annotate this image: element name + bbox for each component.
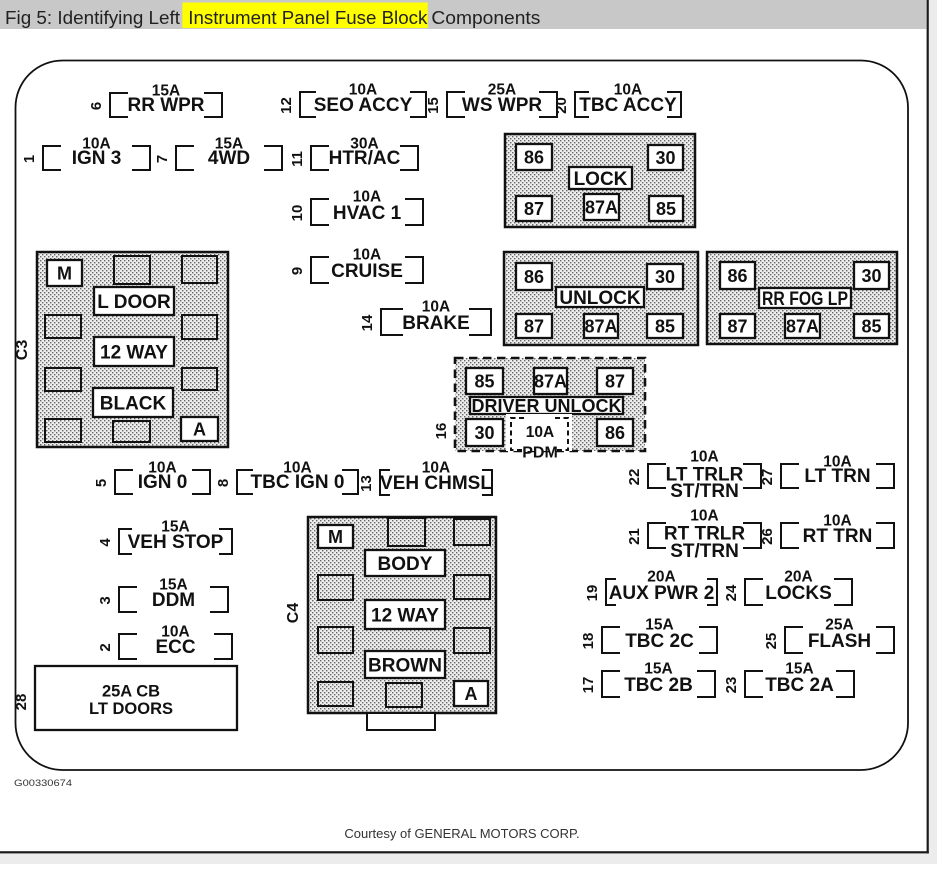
svg-text:TBC 2B: TBC 2B xyxy=(624,675,693,696)
svg-text:VEH STOP: VEH STOP xyxy=(128,532,224,553)
svg-text:87A: 87A xyxy=(786,316,819,336)
svg-text:BODY: BODY xyxy=(378,554,433,575)
svg-text:12 WAY: 12 WAY xyxy=(371,605,439,626)
svg-text:21: 21 xyxy=(626,528,643,545)
svg-text:DDM: DDM xyxy=(152,590,195,611)
svg-text:Courtesy of GENERAL MOTORS COR: Courtesy of GENERAL MOTORS CORP. xyxy=(344,826,579,841)
svg-text:L DOOR: L DOOR xyxy=(97,292,171,313)
svg-text:4: 4 xyxy=(97,538,114,547)
svg-text:PDM: PDM xyxy=(522,445,558,462)
svg-text:30: 30 xyxy=(655,267,675,287)
svg-text:LOCK: LOCK xyxy=(574,169,628,190)
svg-text:DRIVER UNLOCK: DRIVER UNLOCK xyxy=(471,396,621,416)
svg-text:RT TRN: RT TRN xyxy=(803,526,873,547)
svg-text:10A: 10A xyxy=(690,449,718,466)
svg-text:86: 86 xyxy=(727,266,747,286)
svg-text:19: 19 xyxy=(584,585,601,602)
svg-text:7: 7 xyxy=(154,155,171,163)
svg-text:IGN 0: IGN 0 xyxy=(138,472,188,493)
svg-text:14: 14 xyxy=(359,314,376,331)
svg-text:87: 87 xyxy=(524,316,544,336)
svg-text:TBC IGN 0: TBC IGN 0 xyxy=(251,472,345,493)
svg-text:12: 12 xyxy=(278,97,295,114)
svg-text:24: 24 xyxy=(723,584,740,601)
svg-text:RR WPR: RR WPR xyxy=(127,95,204,116)
svg-text:IGN 3: IGN 3 xyxy=(72,148,122,169)
svg-text:CRUISE: CRUISE xyxy=(331,261,403,282)
svg-text:LOCKS: LOCKS xyxy=(765,583,832,604)
svg-text:86: 86 xyxy=(605,423,625,443)
svg-text:10A: 10A xyxy=(526,424,554,441)
svg-text:ST/TRN: ST/TRN xyxy=(670,481,739,502)
svg-text:VEH CHMSL: VEH CHMSL xyxy=(380,473,492,494)
svg-text:10: 10 xyxy=(289,205,306,222)
svg-text:ECC: ECC xyxy=(155,637,195,658)
svg-text:8: 8 xyxy=(215,479,232,487)
svg-text:M: M xyxy=(328,527,343,547)
svg-text:87: 87 xyxy=(524,199,544,219)
svg-text:UNLOCK: UNLOCK xyxy=(559,288,641,309)
svg-text:BRAKE: BRAKE xyxy=(402,313,470,334)
svg-text:G00330674: G00330674 xyxy=(14,778,72,789)
svg-text:27: 27 xyxy=(759,469,776,486)
svg-text:Fig 5: Identifying LeftInstrum: Fig 5: Identifying LeftInstrument Panel … xyxy=(5,7,540,28)
svg-text:13: 13 xyxy=(358,475,375,492)
svg-text:C3: C3 xyxy=(14,340,31,361)
svg-text:85: 85 xyxy=(656,199,676,219)
svg-text:6: 6 xyxy=(88,102,105,110)
svg-text:16: 16 xyxy=(433,423,450,440)
svg-text:12 WAY: 12 WAY xyxy=(100,342,168,363)
svg-text:87A: 87A xyxy=(584,316,617,336)
svg-text:28: 28 xyxy=(13,694,30,711)
svg-text:TBC 2C: TBC 2C xyxy=(625,631,694,652)
svg-text:SEO ACCY: SEO ACCY xyxy=(314,95,413,116)
svg-text:86: 86 xyxy=(524,147,544,167)
svg-text:30: 30 xyxy=(474,423,494,443)
svg-text:A: A xyxy=(193,419,206,439)
svg-text:FLASH: FLASH xyxy=(808,631,871,652)
svg-text:20: 20 xyxy=(553,97,570,114)
svg-text:86: 86 xyxy=(524,267,544,287)
svg-text:BLACK: BLACK xyxy=(100,393,167,414)
svg-text:9: 9 xyxy=(289,267,306,275)
svg-text:26: 26 xyxy=(759,528,776,545)
svg-text:AUX PWR 2: AUX PWR 2 xyxy=(609,583,715,604)
svg-text:2: 2 xyxy=(97,643,114,651)
svg-text:M: M xyxy=(57,263,72,283)
svg-text:30: 30 xyxy=(655,148,675,168)
svg-text:LT TRN: LT TRN xyxy=(804,466,870,487)
svg-text:A: A xyxy=(465,684,478,704)
svg-text:4WD: 4WD xyxy=(208,148,250,169)
svg-text:87A: 87A xyxy=(534,371,567,391)
svg-text:85: 85 xyxy=(861,316,881,336)
svg-text:HVAC 1: HVAC 1 xyxy=(333,203,402,224)
svg-text:3: 3 xyxy=(97,596,114,604)
svg-text:C4: C4 xyxy=(285,603,302,624)
svg-text:15: 15 xyxy=(425,97,442,114)
svg-text:LT DOORS: LT DOORS xyxy=(89,700,173,718)
svg-text:TBC ACCY: TBC ACCY xyxy=(579,95,677,116)
svg-text:25: 25 xyxy=(763,633,780,650)
svg-text:30: 30 xyxy=(861,266,881,286)
svg-text:17: 17 xyxy=(580,677,597,694)
svg-text:RR FOG LP: RR FOG LP xyxy=(762,289,848,310)
svg-text:ST/TRN: ST/TRN xyxy=(670,541,739,562)
svg-text:22: 22 xyxy=(626,469,643,486)
svg-text:11: 11 xyxy=(289,151,306,167)
svg-text:10A: 10A xyxy=(690,508,718,525)
svg-text:87: 87 xyxy=(605,371,625,391)
svg-text:87A: 87A xyxy=(585,197,618,217)
svg-text:85: 85 xyxy=(655,316,675,336)
svg-text:1: 1 xyxy=(21,155,38,163)
svg-text:25A CB: 25A CB xyxy=(102,683,160,701)
svg-text:85: 85 xyxy=(474,371,494,391)
svg-text:18: 18 xyxy=(580,633,597,650)
svg-text:WS WPR: WS WPR xyxy=(462,95,542,116)
svg-text:HTR/AC: HTR/AC xyxy=(329,148,401,169)
svg-text:TBC 2A: TBC 2A xyxy=(765,675,834,696)
svg-text:87: 87 xyxy=(727,316,747,336)
svg-text:BROWN: BROWN xyxy=(368,655,442,676)
svg-text:5: 5 xyxy=(93,479,110,487)
svg-text:23: 23 xyxy=(723,677,740,694)
